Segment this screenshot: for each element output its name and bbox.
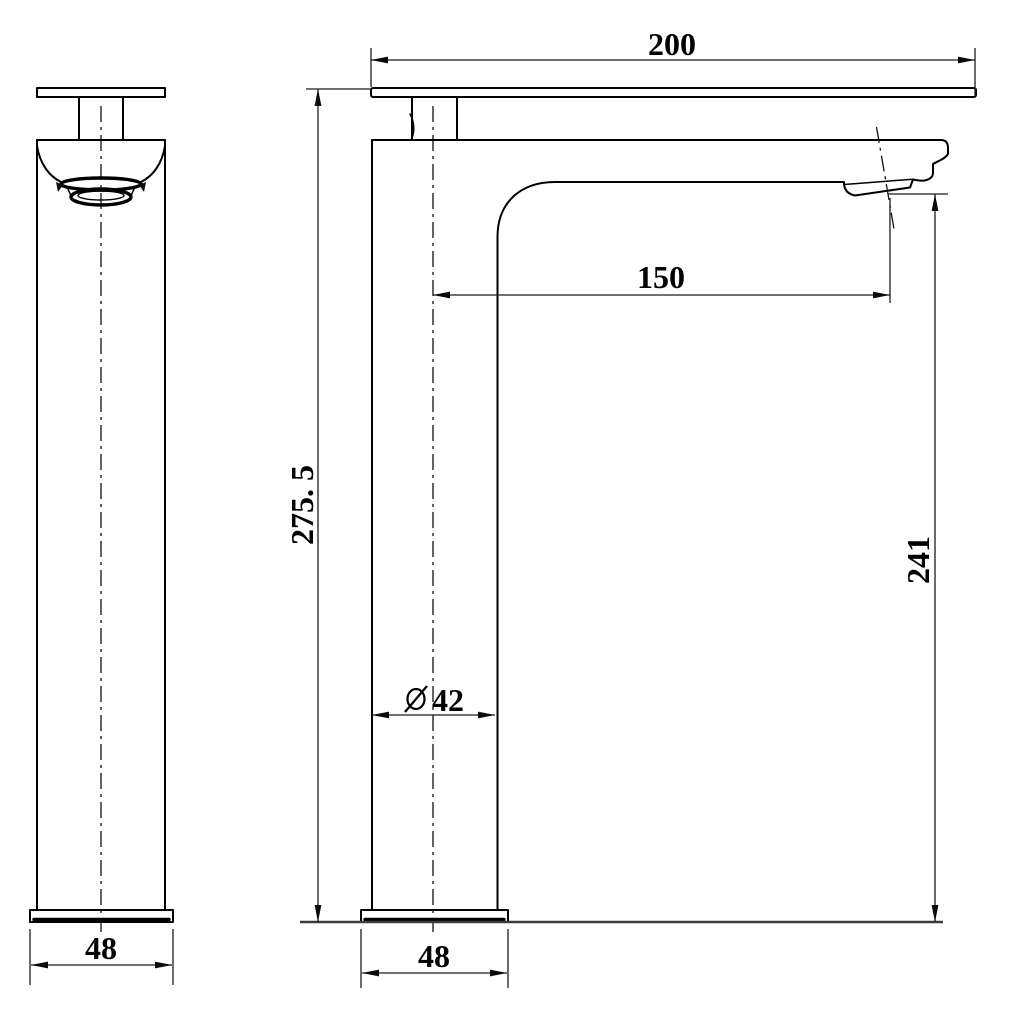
dim-275-arrow-bottom	[315, 905, 322, 922]
drawing-canvas: 200 275. 5 150 241 42	[0, 0, 1024, 1024]
side-view	[361, 88, 976, 932]
dim-48s-arrow-right	[490, 970, 507, 977]
dim-48s-arrow-left	[362, 970, 379, 977]
side-outlet-axis-centerline	[877, 127, 895, 229]
dim-48f-arrow-left	[31, 962, 48, 969]
dim-42-label: 42	[432, 682, 464, 718]
front-shoulder-right-curve	[141, 146, 165, 182]
side-body-spout-outline	[372, 140, 948, 910]
dim-overall-height: 275. 5	[284, 89, 371, 922]
front-view	[30, 88, 173, 932]
dim-48s-label: 48	[418, 938, 450, 974]
dim-200-arrow-right	[958, 57, 975, 64]
dim-body-diameter: 42	[372, 682, 495, 718]
side-outlet-flange-line	[844, 179, 913, 184]
dim-lever-length: 200	[371, 26, 975, 96]
dim-48f-label: 48	[85, 930, 117, 966]
dim-base-width-front: 48	[30, 929, 173, 985]
dim-outlet-height: 241	[888, 194, 948, 922]
front-lever-cap	[37, 88, 165, 97]
dim-48f-arrow-right	[155, 962, 172, 969]
dim-150-arrow-right	[873, 292, 890, 299]
dim-150-arrow-left	[433, 292, 450, 299]
dim-275-label: 275. 5	[284, 465, 320, 545]
side-lever-handle	[371, 88, 976, 97]
dim-200-label: 200	[648, 26, 696, 62]
dim-42-arrow-left	[372, 712, 389, 719]
dim-base-width-side: 48	[361, 929, 508, 988]
dim-241-label: 241	[900, 536, 936, 584]
dim-241-arrow-top	[932, 194, 939, 211]
dim-150-label: 150	[637, 259, 685, 295]
dim-275-arrow-top	[315, 89, 322, 106]
dim-42-arrow-right	[478, 712, 495, 719]
front-shoulder-left-curve	[37, 146, 61, 182]
dim-241-arrow-bottom	[932, 905, 939, 922]
dim-200-arrow-left	[371, 57, 388, 64]
faucet-technical-drawing: 200 275. 5 150 241 42	[0, 0, 1024, 1024]
